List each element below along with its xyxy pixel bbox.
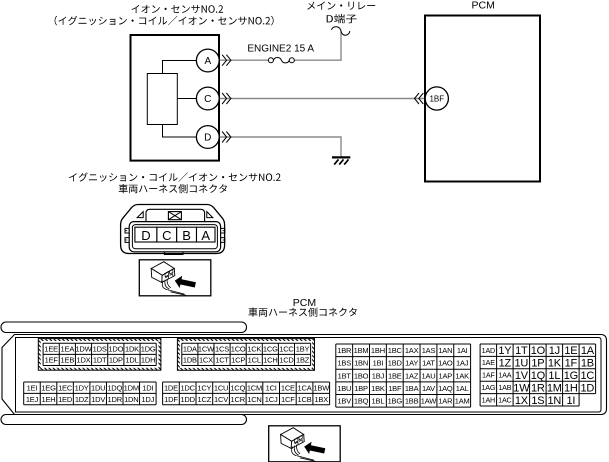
svg-text:1EJ: 1EJ	[26, 395, 39, 404]
svg-text:D: D	[141, 228, 150, 243]
svg-text:1DD: 1DD	[180, 395, 195, 404]
svg-text:1EA: 1EA	[61, 345, 75, 354]
svg-text:PCM: PCM	[293, 297, 316, 309]
svg-text:1DG: 1DG	[141, 345, 156, 354]
svg-text:1CQ: 1CQ	[230, 383, 245, 392]
svg-text:1J: 1J	[549, 345, 560, 357]
svg-text:1DI: 1DI	[142, 383, 153, 392]
svg-text:1CR: 1CR	[231, 395, 246, 404]
svg-text:1BB: 1BB	[405, 396, 419, 405]
svg-text:1DX: 1DX	[77, 356, 91, 365]
svg-text:1N: 1N	[548, 395, 562, 407]
svg-text:1BN: 1BN	[354, 359, 368, 368]
svg-text:1BF: 1BF	[388, 384, 402, 393]
svg-text:1AT: 1AT	[422, 359, 435, 368]
svg-text:1AJ: 1AJ	[456, 359, 469, 368]
svg-text:1CA: 1CA	[298, 383, 312, 392]
svg-text:1DF: 1DF	[164, 395, 178, 404]
svg-text:1P: 1P	[531, 358, 544, 370]
svg-text:1CY: 1CY	[197, 383, 211, 392]
svg-text:1AZ: 1AZ	[405, 371, 419, 380]
svg-text:1DZ: 1DZ	[75, 395, 89, 404]
svg-text:1BZ: 1BZ	[296, 356, 310, 365]
svg-text:1CX: 1CX	[199, 356, 213, 365]
svg-text:1BQ: 1BQ	[354, 396, 369, 405]
svg-text:1BF: 1BF	[429, 94, 444, 103]
svg-text:1AA: 1AA	[498, 371, 511, 380]
svg-text:1CK: 1CK	[247, 345, 261, 354]
svg-text:1DH: 1DH	[141, 356, 155, 365]
svg-text:1CD: 1CD	[279, 356, 294, 365]
svg-text:1CS: 1CS	[215, 345, 229, 354]
svg-text:1AK: 1AK	[455, 371, 469, 380]
svg-text:1DC: 1DC	[180, 383, 195, 392]
svg-text:1CN: 1CN	[247, 395, 261, 404]
svg-text:1D: 1D	[581, 382, 595, 394]
svg-text:1DY: 1DY	[75, 383, 89, 392]
svg-text:B: B	[182, 228, 191, 243]
svg-text:1AI: 1AI	[457, 346, 468, 355]
svg-text:1BM: 1BM	[354, 346, 369, 355]
svg-text:1BH: 1BH	[371, 346, 385, 355]
svg-text:1Y: 1Y	[498, 345, 512, 357]
svg-text:1EB: 1EB	[61, 356, 75, 365]
svg-text:1EG: 1EG	[41, 383, 56, 392]
svg-text:1CB: 1CB	[298, 395, 312, 404]
svg-text:1A: 1A	[581, 345, 595, 357]
svg-text:1B: 1B	[581, 358, 594, 370]
svg-text:1BR: 1BR	[337, 346, 352, 355]
svg-text:1AR: 1AR	[438, 396, 453, 405]
svg-text:1R: 1R	[531, 382, 545, 394]
svg-text:1CH: 1CH	[263, 356, 277, 365]
svg-text:D: D	[204, 133, 211, 144]
svg-text:1CG: 1CG	[263, 345, 278, 354]
svg-text:1AH: 1AH	[482, 395, 495, 404]
svg-text:A: A	[201, 228, 210, 243]
svg-text:1BV: 1BV	[337, 396, 351, 405]
svg-text:1AO: 1AO	[438, 359, 453, 368]
svg-text:1L: 1L	[548, 370, 560, 382]
svg-text:1BX: 1BX	[314, 395, 328, 404]
svg-text:1AU: 1AU	[421, 371, 435, 380]
svg-text:1BG: 1BG	[388, 396, 403, 405]
svg-text:ENGINE2 15 A: ENGINE2 15 A	[247, 44, 314, 55]
svg-text:1DB: 1DB	[183, 356, 197, 365]
svg-text:1CJ: 1CJ	[265, 395, 278, 404]
svg-text:1AC: 1AC	[498, 395, 511, 404]
svg-text:1DO: 1DO	[108, 345, 123, 354]
svg-text:1BE: 1BE	[388, 371, 402, 380]
svg-text:1AX: 1AX	[405, 346, 419, 355]
svg-text:1CV: 1CV	[214, 395, 228, 404]
svg-text:1CL: 1CL	[248, 356, 261, 365]
svg-text:1AN: 1AN	[438, 346, 452, 355]
svg-text:1BY: 1BY	[296, 345, 310, 354]
svg-text:C: C	[162, 228, 171, 243]
svg-text:1ED: 1ED	[58, 395, 73, 404]
svg-text:1AD: 1AD	[482, 346, 495, 355]
svg-text:1EE: 1EE	[44, 345, 58, 354]
svg-text:1V: 1V	[515, 370, 529, 382]
svg-text:1AV: 1AV	[422, 384, 435, 393]
svg-text:1CF: 1CF	[281, 395, 295, 404]
svg-text:1AE: 1AE	[482, 358, 495, 367]
svg-text:1AG: 1AG	[481, 383, 495, 392]
svg-text:1DR: 1DR	[108, 395, 123, 404]
svg-text:1DW: 1DW	[75, 345, 92, 354]
svg-text:1EF: 1EF	[45, 356, 59, 365]
svg-text:1CE: 1CE	[281, 383, 295, 392]
svg-text:1EI: 1EI	[27, 383, 38, 392]
svg-text:1S: 1S	[531, 395, 544, 407]
svg-text:1BW: 1BW	[313, 383, 330, 392]
svg-text:1M: 1M	[547, 382, 562, 394]
svg-text:1BJ: 1BJ	[372, 371, 385, 380]
svg-text:1CP: 1CP	[231, 356, 245, 365]
svg-text:1BI: 1BI	[373, 359, 384, 368]
svg-text:1E: 1E	[564, 345, 577, 357]
svg-text:1DV: 1DV	[91, 395, 105, 404]
svg-text:1CO: 1CO	[231, 345, 246, 354]
svg-text:1O: 1O	[531, 345, 546, 357]
svg-text:1BD: 1BD	[388, 359, 403, 368]
svg-text:1CT: 1CT	[215, 356, 229, 365]
svg-text:1H: 1H	[564, 382, 578, 394]
svg-text:1DN: 1DN	[124, 395, 138, 404]
svg-text:C: C	[204, 94, 211, 105]
svg-text:1I: 1I	[566, 395, 575, 407]
svg-text:1CM: 1CM	[247, 383, 262, 392]
svg-text:1G: 1G	[564, 370, 578, 382]
svg-text:1DM: 1DM	[124, 383, 139, 392]
svg-text:1CC: 1CC	[279, 345, 294, 354]
svg-text:1DJ: 1DJ	[141, 395, 154, 404]
svg-text:1DP: 1DP	[109, 356, 123, 365]
svg-text:1BP: 1BP	[354, 384, 368, 393]
svg-text:1BT: 1BT	[338, 371, 352, 380]
svg-text:1CI: 1CI	[266, 383, 277, 392]
svg-text:1Z: 1Z	[499, 358, 512, 370]
svg-text:1AF: 1AF	[482, 371, 495, 380]
svg-text:1W: 1W	[513, 382, 530, 394]
svg-text:1C: 1C	[581, 370, 595, 382]
svg-text:1BK: 1BK	[371, 384, 385, 393]
svg-text:1DE: 1DE	[164, 383, 178, 392]
svg-text:1F: 1F	[565, 358, 578, 370]
svg-text:1BA: 1BA	[405, 384, 419, 393]
svg-text:1AS: 1AS	[422, 346, 436, 355]
svg-text:1AM: 1AM	[455, 396, 470, 405]
svg-text:1AQ: 1AQ	[438, 384, 453, 393]
svg-text:1AW: 1AW	[421, 396, 437, 405]
svg-text:A: A	[204, 56, 211, 67]
svg-text:1CU: 1CU	[214, 383, 228, 392]
svg-text:1X: 1X	[515, 395, 529, 407]
svg-text:1BU: 1BU	[337, 384, 351, 393]
svg-text:1BO: 1BO	[354, 371, 369, 380]
svg-text:1DQ: 1DQ	[107, 383, 122, 392]
svg-text:1DK: 1DK	[125, 345, 139, 354]
svg-text:1AB: 1AB	[498, 383, 511, 392]
svg-text:1DL: 1DL	[125, 356, 138, 365]
svg-text:1BL: 1BL	[372, 396, 385, 405]
svg-text:1CZ: 1CZ	[198, 395, 212, 404]
svg-text:1DT: 1DT	[93, 356, 107, 365]
svg-text:1BS: 1BS	[337, 359, 351, 368]
svg-text:1DA: 1DA	[183, 345, 197, 354]
svg-text:1T: 1T	[515, 345, 528, 357]
svg-text:1AP: 1AP	[439, 371, 453, 380]
svg-text:1DS: 1DS	[93, 345, 107, 354]
svg-text:1EC: 1EC	[58, 383, 73, 392]
svg-text:1DU: 1DU	[91, 383, 105, 392]
svg-text:1K: 1K	[548, 358, 562, 370]
svg-text:1CW: 1CW	[198, 345, 215, 354]
svg-text:1Q: 1Q	[531, 370, 546, 382]
svg-text:1EH: 1EH	[42, 395, 56, 404]
svg-text:1AL: 1AL	[456, 384, 469, 393]
svg-text:1U: 1U	[515, 358, 529, 370]
svg-text:PCM: PCM	[472, 0, 495, 11]
svg-text:1AY: 1AY	[405, 359, 418, 368]
svg-text:1BC: 1BC	[388, 346, 403, 355]
